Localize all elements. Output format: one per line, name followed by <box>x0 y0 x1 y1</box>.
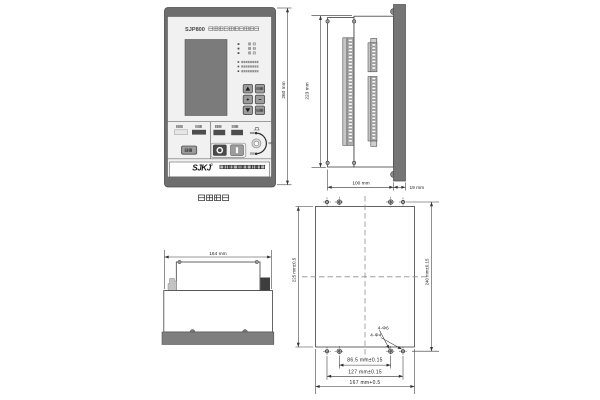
svg-text:SJP800: SJP800 <box>185 27 205 33</box>
svg-text:127 mm±0.15: 127 mm±0.15 <box>348 370 382 376</box>
svg-text:164 mm: 164 mm <box>209 251 226 257</box>
svg-text:225 mm±0.5: 225 mm±0.5 <box>292 257 297 282</box>
svg-text:SJKJ: SJKJ <box>192 163 211 172</box>
svg-text:19 mm: 19 mm <box>410 185 425 191</box>
svg-text:260 mm: 260 mm <box>281 81 287 98</box>
svg-text:240 mm±0.15: 240 mm±0.15 <box>424 258 429 285</box>
svg-text:167 mm+0.5: 167 mm+0.5 <box>350 380 381 386</box>
svg-text:100 mm: 100 mm <box>352 180 369 186</box>
svg-text:223 mm: 223 mm <box>305 82 311 99</box>
svg-text:4-Φ6: 4-Φ6 <box>378 325 389 330</box>
svg-text:86.5 mm±0.15: 86.5 mm±0.15 <box>347 358 383 364</box>
svg-text:4-Φ4: 4-Φ4 <box>370 333 381 338</box>
